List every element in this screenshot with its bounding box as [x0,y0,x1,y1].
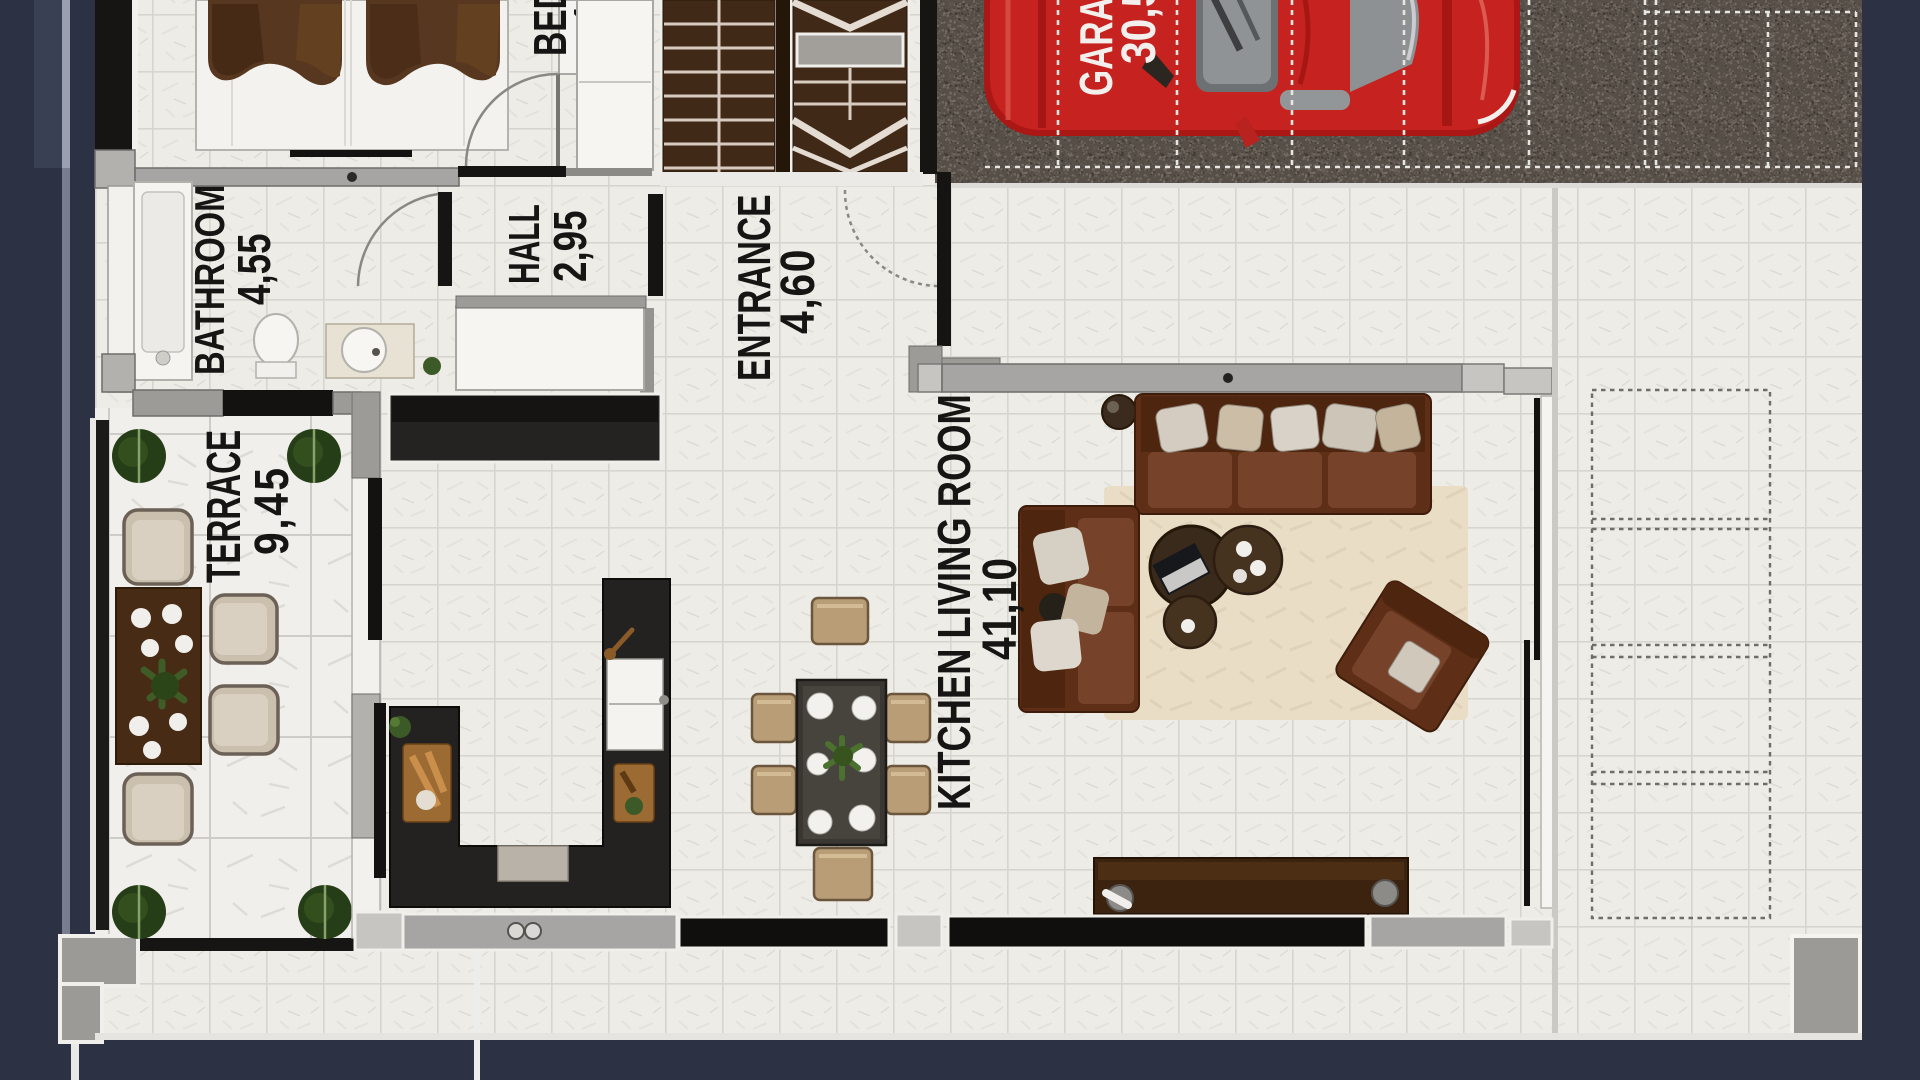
svg-text:BATHROOM: BATHROOM [186,185,233,375]
svg-text:30,55: 30,55 [1113,0,1166,64]
svg-text:2,95: 2,95 [544,210,596,282]
svg-text:41,10: 41,10 [974,558,1027,660]
svg-text:HALL: HALL [499,204,548,284]
svg-text:KITCHEN LIVING ROOM: KITCHEN LIVING ROOM [928,394,980,810]
svg-text:4,55: 4,55 [228,233,280,305]
svg-text:4,60: 4,60 [772,248,825,334]
svg-text:9,45: 9,45 [246,465,299,555]
svg-text:TERRACE: TERRACE [196,430,250,583]
